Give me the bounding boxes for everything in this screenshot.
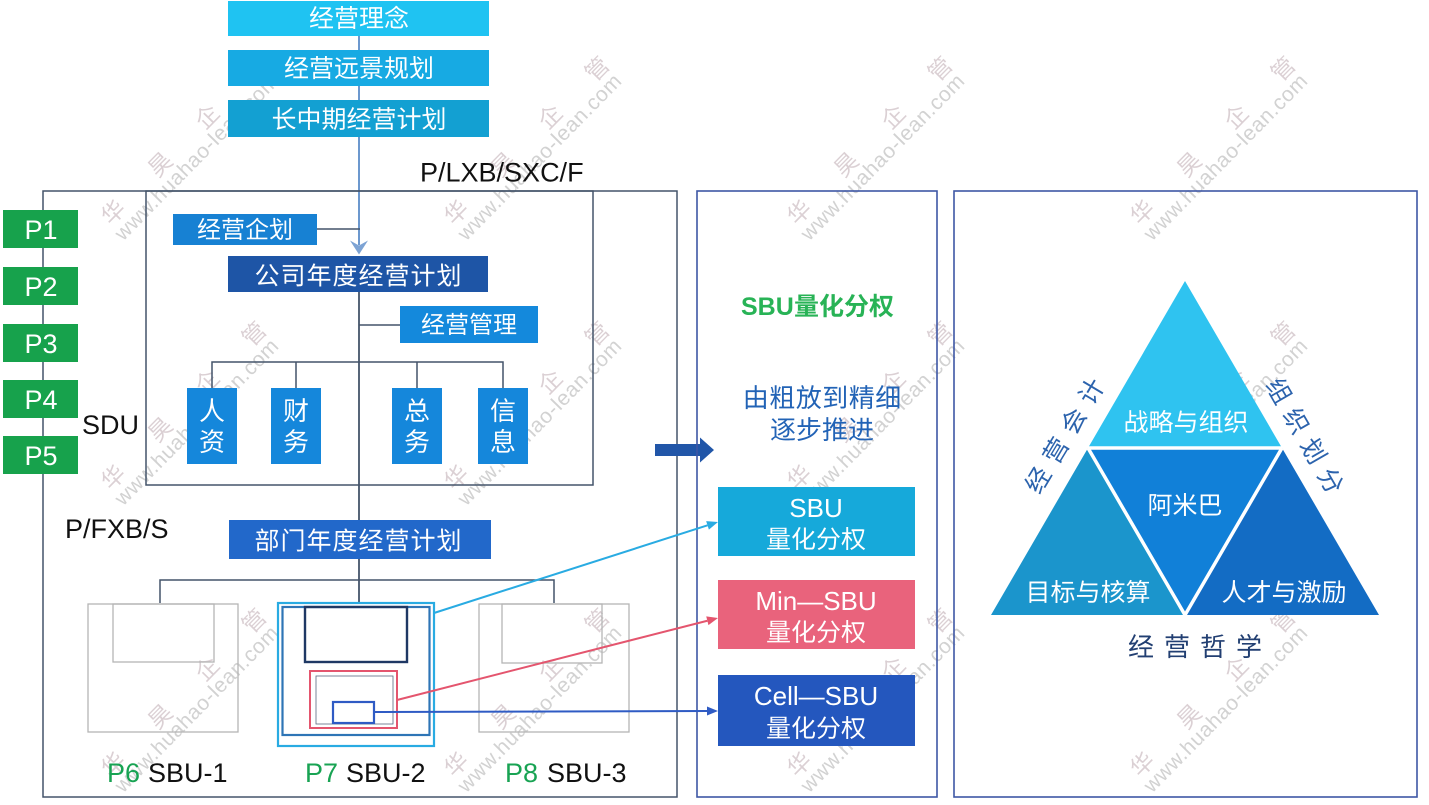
svg-text:SDU: SDU [82, 410, 139, 440]
svg-text:SBU-3: SBU-3 [547, 758, 627, 788]
svg-text:P/FXB/S: P/FXB/S [65, 514, 169, 544]
svg-text:P6: P6 [107, 758, 140, 788]
svg-text:Cell—SBU: Cell—SBU [754, 681, 878, 711]
svg-text:SBU-1: SBU-1 [148, 758, 228, 788]
svg-text:www.huahao-lean.com: www.huahao-lean.com [796, 69, 970, 246]
svg-text:www.huahao-lean.com: www.huahao-lean.com [796, 334, 970, 511]
svg-text:SBU-2: SBU-2 [346, 758, 426, 788]
svg-text:SBU: SBU [789, 493, 842, 523]
svg-text:P/LXB/SXC/F: P/LXB/SXC/F [420, 158, 584, 188]
svg-text:Min—SBU: Min—SBU [755, 586, 876, 616]
svg-text:www.huahao-lean.com: www.huahao-lean.com [1139, 621, 1313, 798]
svg-text:P1: P1 [24, 215, 57, 245]
svg-text:www.huahao-lean.com: www.huahao-lean.com [1139, 69, 1313, 246]
svg-text:P4: P4 [24, 385, 57, 415]
svg-text:SBU: SBU [741, 293, 794, 321]
svg-text:P7: P7 [305, 758, 338, 788]
svg-text:P8: P8 [505, 758, 538, 788]
svg-text:P2: P2 [24, 272, 57, 302]
svg-text:P3: P3 [24, 329, 57, 359]
svg-text:P5: P5 [24, 441, 57, 471]
